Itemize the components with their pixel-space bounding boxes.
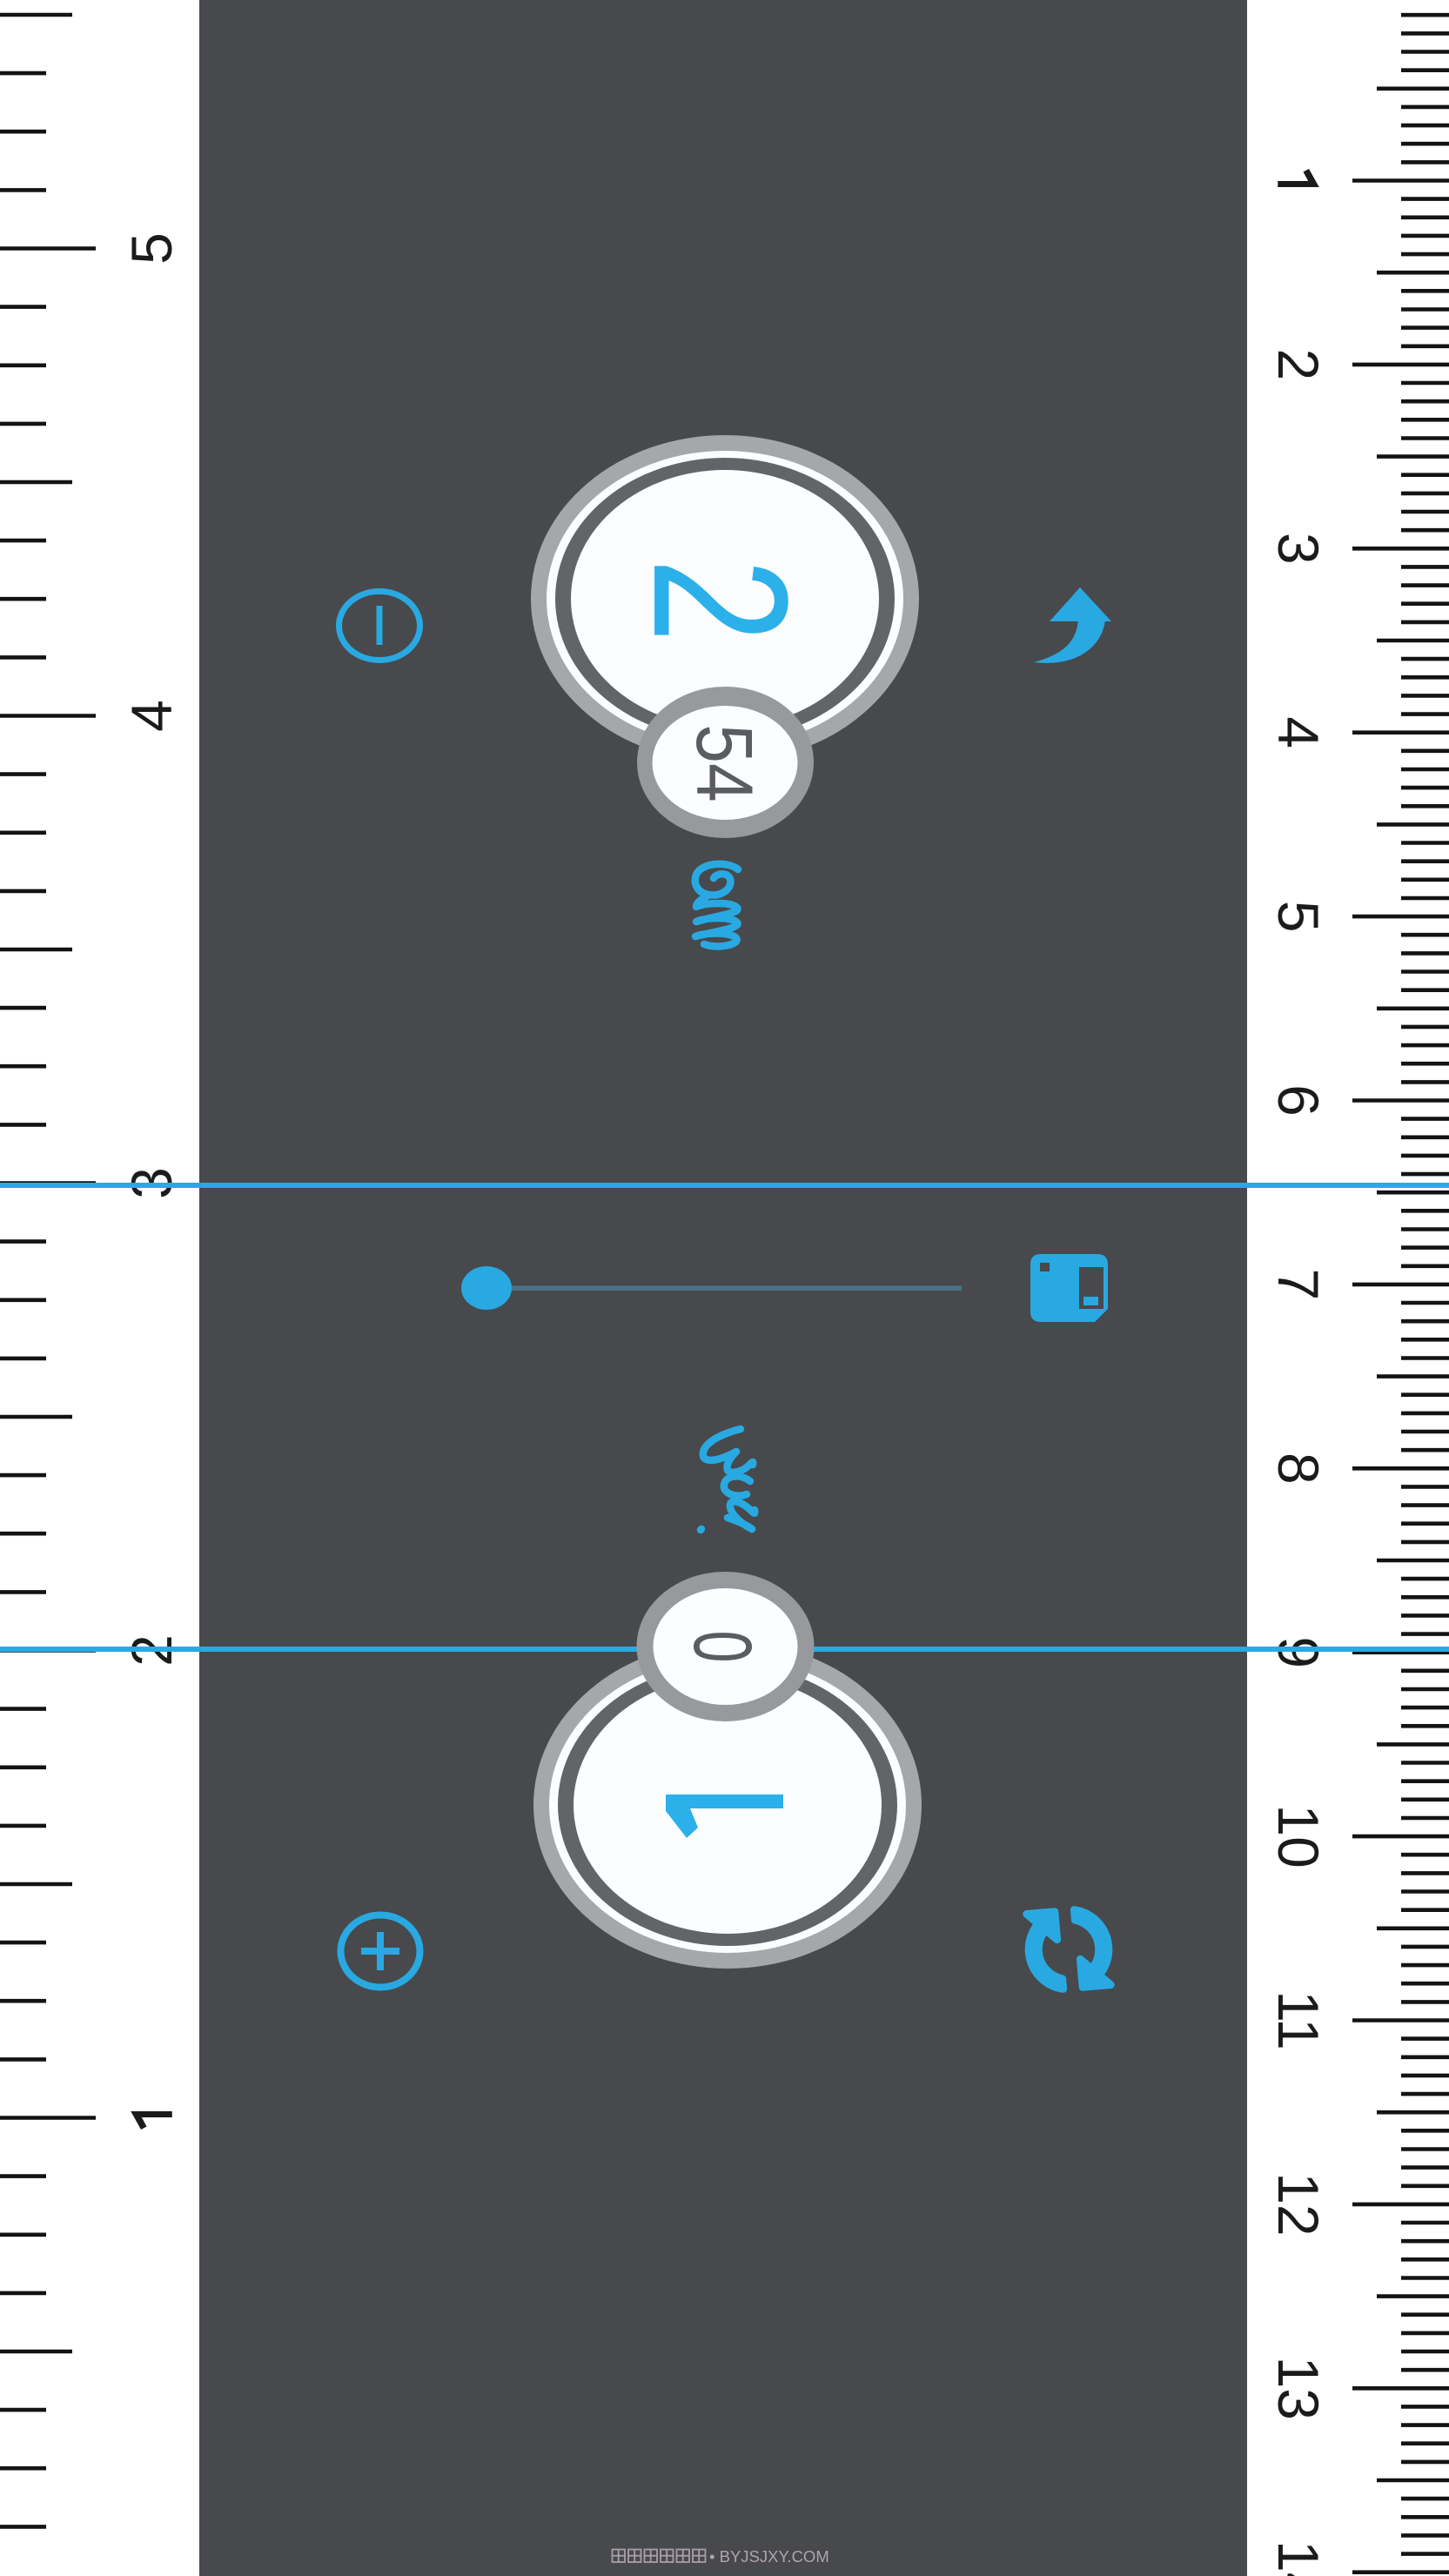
svg-text:6: 6 <box>1266 1084 1331 1117</box>
svg-text:11: 11 <box>1266 1990 1331 2050</box>
svg-text:5: 5 <box>1266 901 1331 933</box>
svg-text:7: 7 <box>1266 1269 1331 1301</box>
svg-text:2: 2 <box>613 559 826 643</box>
svg-text:9: 9 <box>1266 1636 1331 1668</box>
svg-text:54: 54 <box>680 724 768 802</box>
svg-text:10: 10 <box>1266 1804 1331 1868</box>
svg-text:14: 14 <box>1266 2540 1331 2576</box>
svg-text:13: 13 <box>1266 2357 1331 2420</box>
svg-text:0: 0 <box>677 1631 768 1663</box>
svg-text:4: 4 <box>1266 716 1331 748</box>
svg-text:3: 3 <box>1266 533 1331 565</box>
svg-text:4: 4 <box>119 700 184 732</box>
svg-text:12: 12 <box>1266 2172 1331 2236</box>
svg-text:2: 2 <box>1266 349 1331 381</box>
svg-text:8: 8 <box>1266 1452 1331 1485</box>
svg-text:• BYJSJXY.COM: • BYJSJXY.COM <box>709 2547 829 2566</box>
svg-text:5: 5 <box>119 232 184 265</box>
